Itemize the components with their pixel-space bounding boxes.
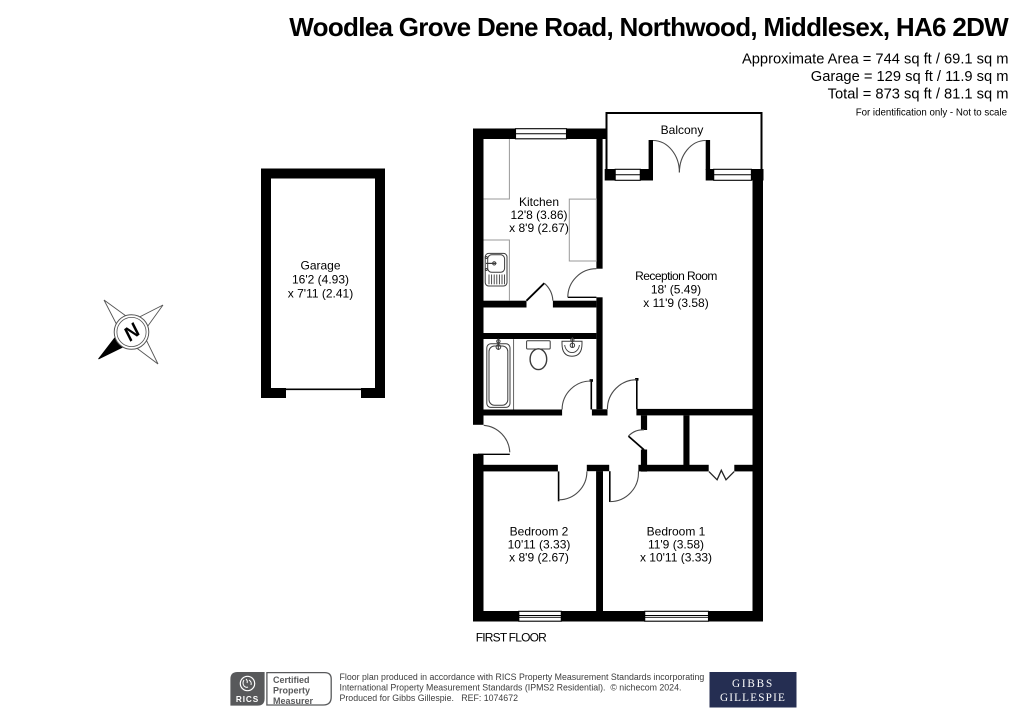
svg-text:Garage: Garage	[300, 259, 340, 273]
svg-text:GIBBS: GIBBS	[732, 678, 774, 690]
svg-text:Certified: Certified	[273, 675, 310, 685]
svg-text:16'2 (4.93): 16'2 (4.93)	[292, 273, 349, 287]
svg-text:International Property Measure: International Property Measurement Stand…	[340, 682, 682, 692]
svg-text:FIRST FLOOR: FIRST FLOOR	[476, 631, 547, 645]
svg-text:Approximate Area = 744 sq ft /: Approximate Area = 744 sq ft / 69.1 sq m	[742, 52, 1009, 68]
svg-text:x 11'9 (3.58): x 11'9 (3.58)	[643, 296, 708, 310]
svg-text:x 10'11 (3.33): x 10'11 (3.33)	[640, 551, 712, 565]
svg-text:Property: Property	[273, 686, 310, 696]
svg-text:Garage = 129 sq ft / 11.9 sq m: Garage = 129 sq ft / 11.9 sq m	[811, 69, 1009, 85]
svg-text:x 8'9 (2.67): x 8'9 (2.67)	[509, 551, 569, 565]
svg-text:Kitchen: Kitchen	[519, 195, 559, 209]
svg-text:12'8 (3.86): 12'8 (3.86)	[511, 208, 568, 222]
svg-text:Floor plan produced in accorda: Floor plan produced in accordance with R…	[340, 672, 705, 682]
svg-text:GILLESPIE: GILLESPIE	[720, 692, 786, 704]
svg-text:Measurer: Measurer	[273, 696, 314, 706]
svg-text:10'11 (3.33): 10'11 (3.33)	[508, 538, 571, 552]
svg-text:For identification only - Not: For identification only - Not to scale	[856, 107, 1007, 118]
svg-text:RICS: RICS	[236, 695, 259, 704]
svg-text:Produced for Gibbs Gillespie.: Produced for Gibbs Gillespie. REF: 10746…	[340, 693, 519, 703]
svg-text:18' (5.49): 18' (5.49)	[651, 283, 701, 297]
svg-text:x 8'9 (2.67): x 8'9 (2.67)	[509, 221, 569, 235]
svg-text:Woodlea Grove Dene Road, North: Woodlea Grove Dene Road, Northwood, Midd…	[289, 12, 1009, 42]
svg-text:Bedroom 1: Bedroom 1	[647, 524, 706, 538]
svg-text:Bedroom 2: Bedroom 2	[510, 524, 569, 538]
svg-text:Balcony: Balcony	[661, 123, 704, 137]
svg-text:11'9 (3.58): 11'9 (3.58)	[648, 538, 704, 552]
svg-text:x 7'11 (2.41): x 7'11 (2.41)	[288, 287, 353, 301]
svg-text:Reception Room: Reception Room	[635, 269, 717, 283]
svg-text:Total = 873 sq ft / 81.1 sq m: Total = 873 sq ft / 81.1 sq m	[828, 87, 1009, 103]
